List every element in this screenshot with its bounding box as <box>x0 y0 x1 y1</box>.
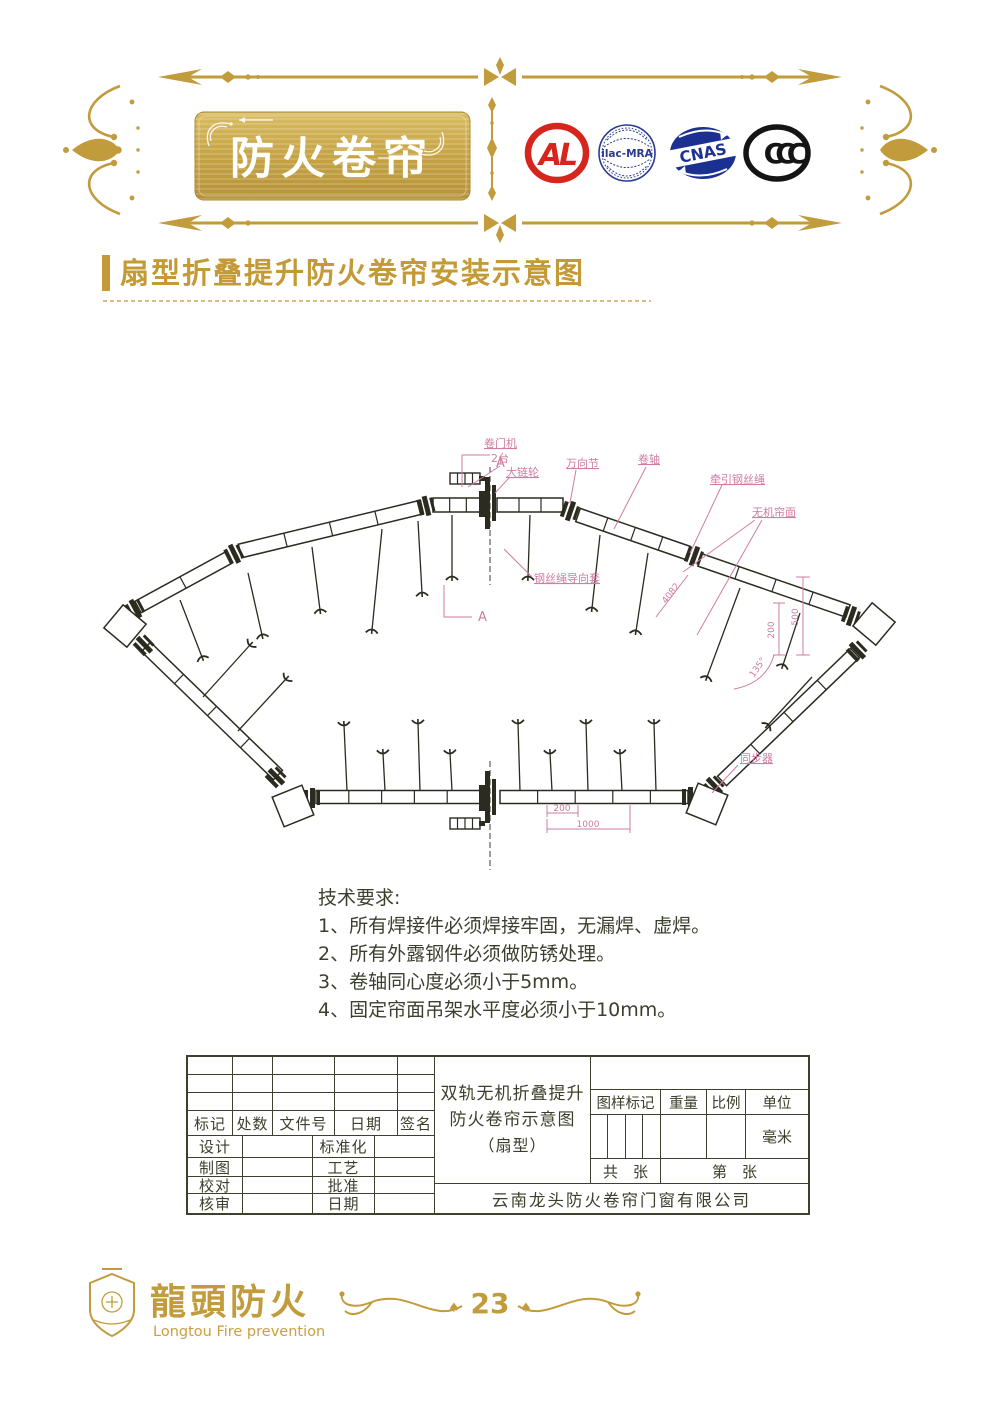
corner-guide-box <box>853 603 895 645</box>
dimension-135-degrees: 135° <box>748 656 769 680</box>
roller-door-motor-top <box>450 467 496 585</box>
hanger-hook <box>338 721 350 791</box>
row-drafting: 制图 <box>188 1158 243 1177</box>
annotation-leader <box>444 585 472 617</box>
row-design: 设计 <box>188 1136 243 1158</box>
row-standardization: 标准化 <box>313 1136 375 1158</box>
header-divider-ornament <box>487 97 497 201</box>
label-synchronizer: 同步器 <box>740 752 773 765</box>
ilac-mra-logo: ilac-MRA <box>599 125 655 181</box>
hanger-hook <box>544 749 556 791</box>
drawing-title-line1: 双轨无机折叠提升 <box>441 1081 585 1107</box>
hanger-hook <box>446 515 458 581</box>
spec-header-drawing-mark: 图样标记 <box>591 1090 661 1115</box>
cal-logo: AL <box>528 126 586 180</box>
installation-diagram: A卷门机2台大链轮万向节卷轴牵引钢丝绳无机帘面钢丝绳导向套A同步器4082500… <box>100 425 900 870</box>
title-block: 标记 处数 文件号 日期 签名 设计 标准化 制图 工艺 校对 批准 核审 日期… <box>186 1055 810 1215</box>
brand-plaque: 防火卷帘 <box>195 112 470 200</box>
tech-item: 4、固定帘面吊架水平度必须小于10mm。 <box>318 996 748 1024</box>
hanger-hook <box>614 749 626 791</box>
curtain-beam <box>717 648 859 785</box>
hanger-hook <box>512 719 524 791</box>
row-approve: 批准 <box>313 1177 375 1194</box>
curtain-beam <box>497 498 563 512</box>
cal-logo-text: AL <box>537 138 576 173</box>
page-footer: 龍頭防火 Longtou Fire prevention ♠ ♠ 23 <box>80 1268 920 1348</box>
col-header-mark: 标记 <box>188 1111 233 1136</box>
spade-icon: ♠ <box>448 1301 460 1316</box>
spec-header-unit: 单位 <box>746 1090 808 1115</box>
tech-title: 技术要求: <box>318 884 748 912</box>
section-marker-a-bottom: A <box>478 610 487 625</box>
hanger-hook <box>416 521 428 597</box>
row-craft: 工艺 <box>313 1158 375 1177</box>
curtain-beam <box>316 791 480 804</box>
tech-item: 3、卷轴同心度必须小于5mm。 <box>318 968 748 996</box>
tech-item: 2、所有外露钢件必须做防锈处理。 <box>318 940 748 968</box>
hanger-hook <box>700 588 740 683</box>
header-ornament-band: 防火卷帘 AL ilac-MRA CNAS CCC <box>60 55 940 245</box>
annotation-leader <box>690 485 722 553</box>
col-header-sign: 签名 <box>398 1111 435 1136</box>
tech-requirements: 技术要求: 1、所有焊接件必须焊接牢固，无漏焊、虚焊。 2、所有外露钢件必须做防… <box>318 884 748 1024</box>
drawing-title-line2: 防火卷帘示意图 <box>450 1107 576 1133</box>
curtain-beam <box>500 791 688 804</box>
dimension-4082: 4082 <box>660 582 682 606</box>
page-number: 23 <box>471 1287 510 1320</box>
row-date: 日期 <box>313 1194 375 1213</box>
header-top-rule <box>158 57 842 86</box>
curtain-beam <box>433 498 483 512</box>
label-roller-shaft: 卷轴 <box>638 452 660 466</box>
curtain-beam <box>135 552 231 612</box>
cnas-logo: CNAS <box>669 127 737 179</box>
hanger-hook <box>248 573 269 640</box>
drawing-title-line3: （扇型） <box>478 1133 546 1159</box>
annotation-leader <box>495 477 510 493</box>
title-block-spec-area: 图样标记 重量 比例 单位 毫米 共 张 第 张 <box>591 1057 808 1183</box>
hanger-hook <box>648 719 660 791</box>
header-left-flourish <box>63 86 140 214</box>
section-title-underline <box>103 300 651 302</box>
sheets-total: 共 张 <box>591 1159 661 1183</box>
dimension-200-side: 200 <box>767 621 777 638</box>
hanger-hook <box>238 672 293 731</box>
col-header-date: 日期 <box>335 1111 398 1136</box>
drawing-title: 双轨无机折叠提升 防火卷帘示意图 （扇型） <box>435 1057 591 1183</box>
annotation-leader <box>614 467 646 529</box>
hanger-hook <box>444 749 456 791</box>
section-title: 扇型折叠提升防火卷帘安装示意图 <box>120 250 585 292</box>
curtain-beam <box>576 508 691 559</box>
title-block-revision-area: 标记 处数 文件号 日期 签名 设计 标准化 制图 工艺 校对 批准 核审 日期 <box>188 1057 435 1213</box>
spec-header-weight: 重量 <box>661 1090 707 1115</box>
annotation-leader <box>504 549 532 577</box>
dimension-200-bottom: 200 <box>553 804 570 814</box>
hanger-hook <box>203 638 257 697</box>
crest-icon <box>90 1268 134 1336</box>
hanger-hook <box>412 719 424 791</box>
col-header-count: 处数 <box>233 1111 273 1136</box>
page-number-ornament: ♠ ♠ 23 <box>339 1287 640 1320</box>
curtain-beam <box>698 554 850 617</box>
unit-value: 毫米 <box>746 1115 808 1159</box>
header-bottom-rule <box>158 214 842 243</box>
hanger-hook <box>377 749 389 791</box>
annotation-leader <box>570 470 576 503</box>
curtain-beam <box>141 642 282 779</box>
section-title-bar <box>102 255 110 291</box>
col-header-fileno: 文件号 <box>273 1111 335 1136</box>
row-proofread: 校对 <box>188 1177 243 1194</box>
roller-door-motor-bottom <box>450 761 496 870</box>
label-traction-wire-rope: 牵引钢丝绳 <box>710 472 765 486</box>
label-wire-rope-guide: 钢丝绳导向套 <box>534 571 600 585</box>
hanger-hook <box>366 529 382 635</box>
footer-logo-en: Longtou Fire prevention <box>153 1324 325 1340</box>
ccc-logo: CCC <box>746 127 808 179</box>
tech-item: 1、所有焊接件必须焊接牢固，无漏焊、虚焊。 <box>318 912 748 940</box>
label-universal-joint: 万向节 <box>566 456 599 470</box>
spec-header-scale: 比例 <box>707 1090 746 1115</box>
spade-icon: ♠ <box>520 1301 532 1316</box>
hanger-hook <box>312 547 326 615</box>
hanger-hook <box>180 600 209 663</box>
label-motor-qty: 2台 <box>491 451 509 465</box>
label-inorganic-curtain: 无机帘面 <box>752 505 796 519</box>
spec-empty-strip <box>591 1057 808 1090</box>
header-right-flourish <box>860 86 937 214</box>
footer-logo-cn: 龍頭防火 <box>150 1282 310 1323</box>
row-review: 核审 <box>188 1194 243 1213</box>
hanger-hook <box>522 515 534 581</box>
sheet-number: 第 张 <box>661 1159 808 1183</box>
hanger-hook <box>629 553 648 636</box>
label-large-sprocket: 大链轮 <box>506 465 539 479</box>
company-name: 云南龙头防火卷帘门窗有限公司 <box>435 1183 808 1213</box>
hanger-hook <box>580 719 592 791</box>
label-roller-door-motor: 卷门机 <box>484 436 517 450</box>
ilac-mra-logo-text: ilac-MRA <box>601 148 653 160</box>
dimension-500: 500 <box>791 608 801 625</box>
curtain-beam <box>238 500 423 558</box>
dimension-1000: 1000 <box>577 820 600 830</box>
plaque-title: 防火卷帘 <box>230 133 434 184</box>
